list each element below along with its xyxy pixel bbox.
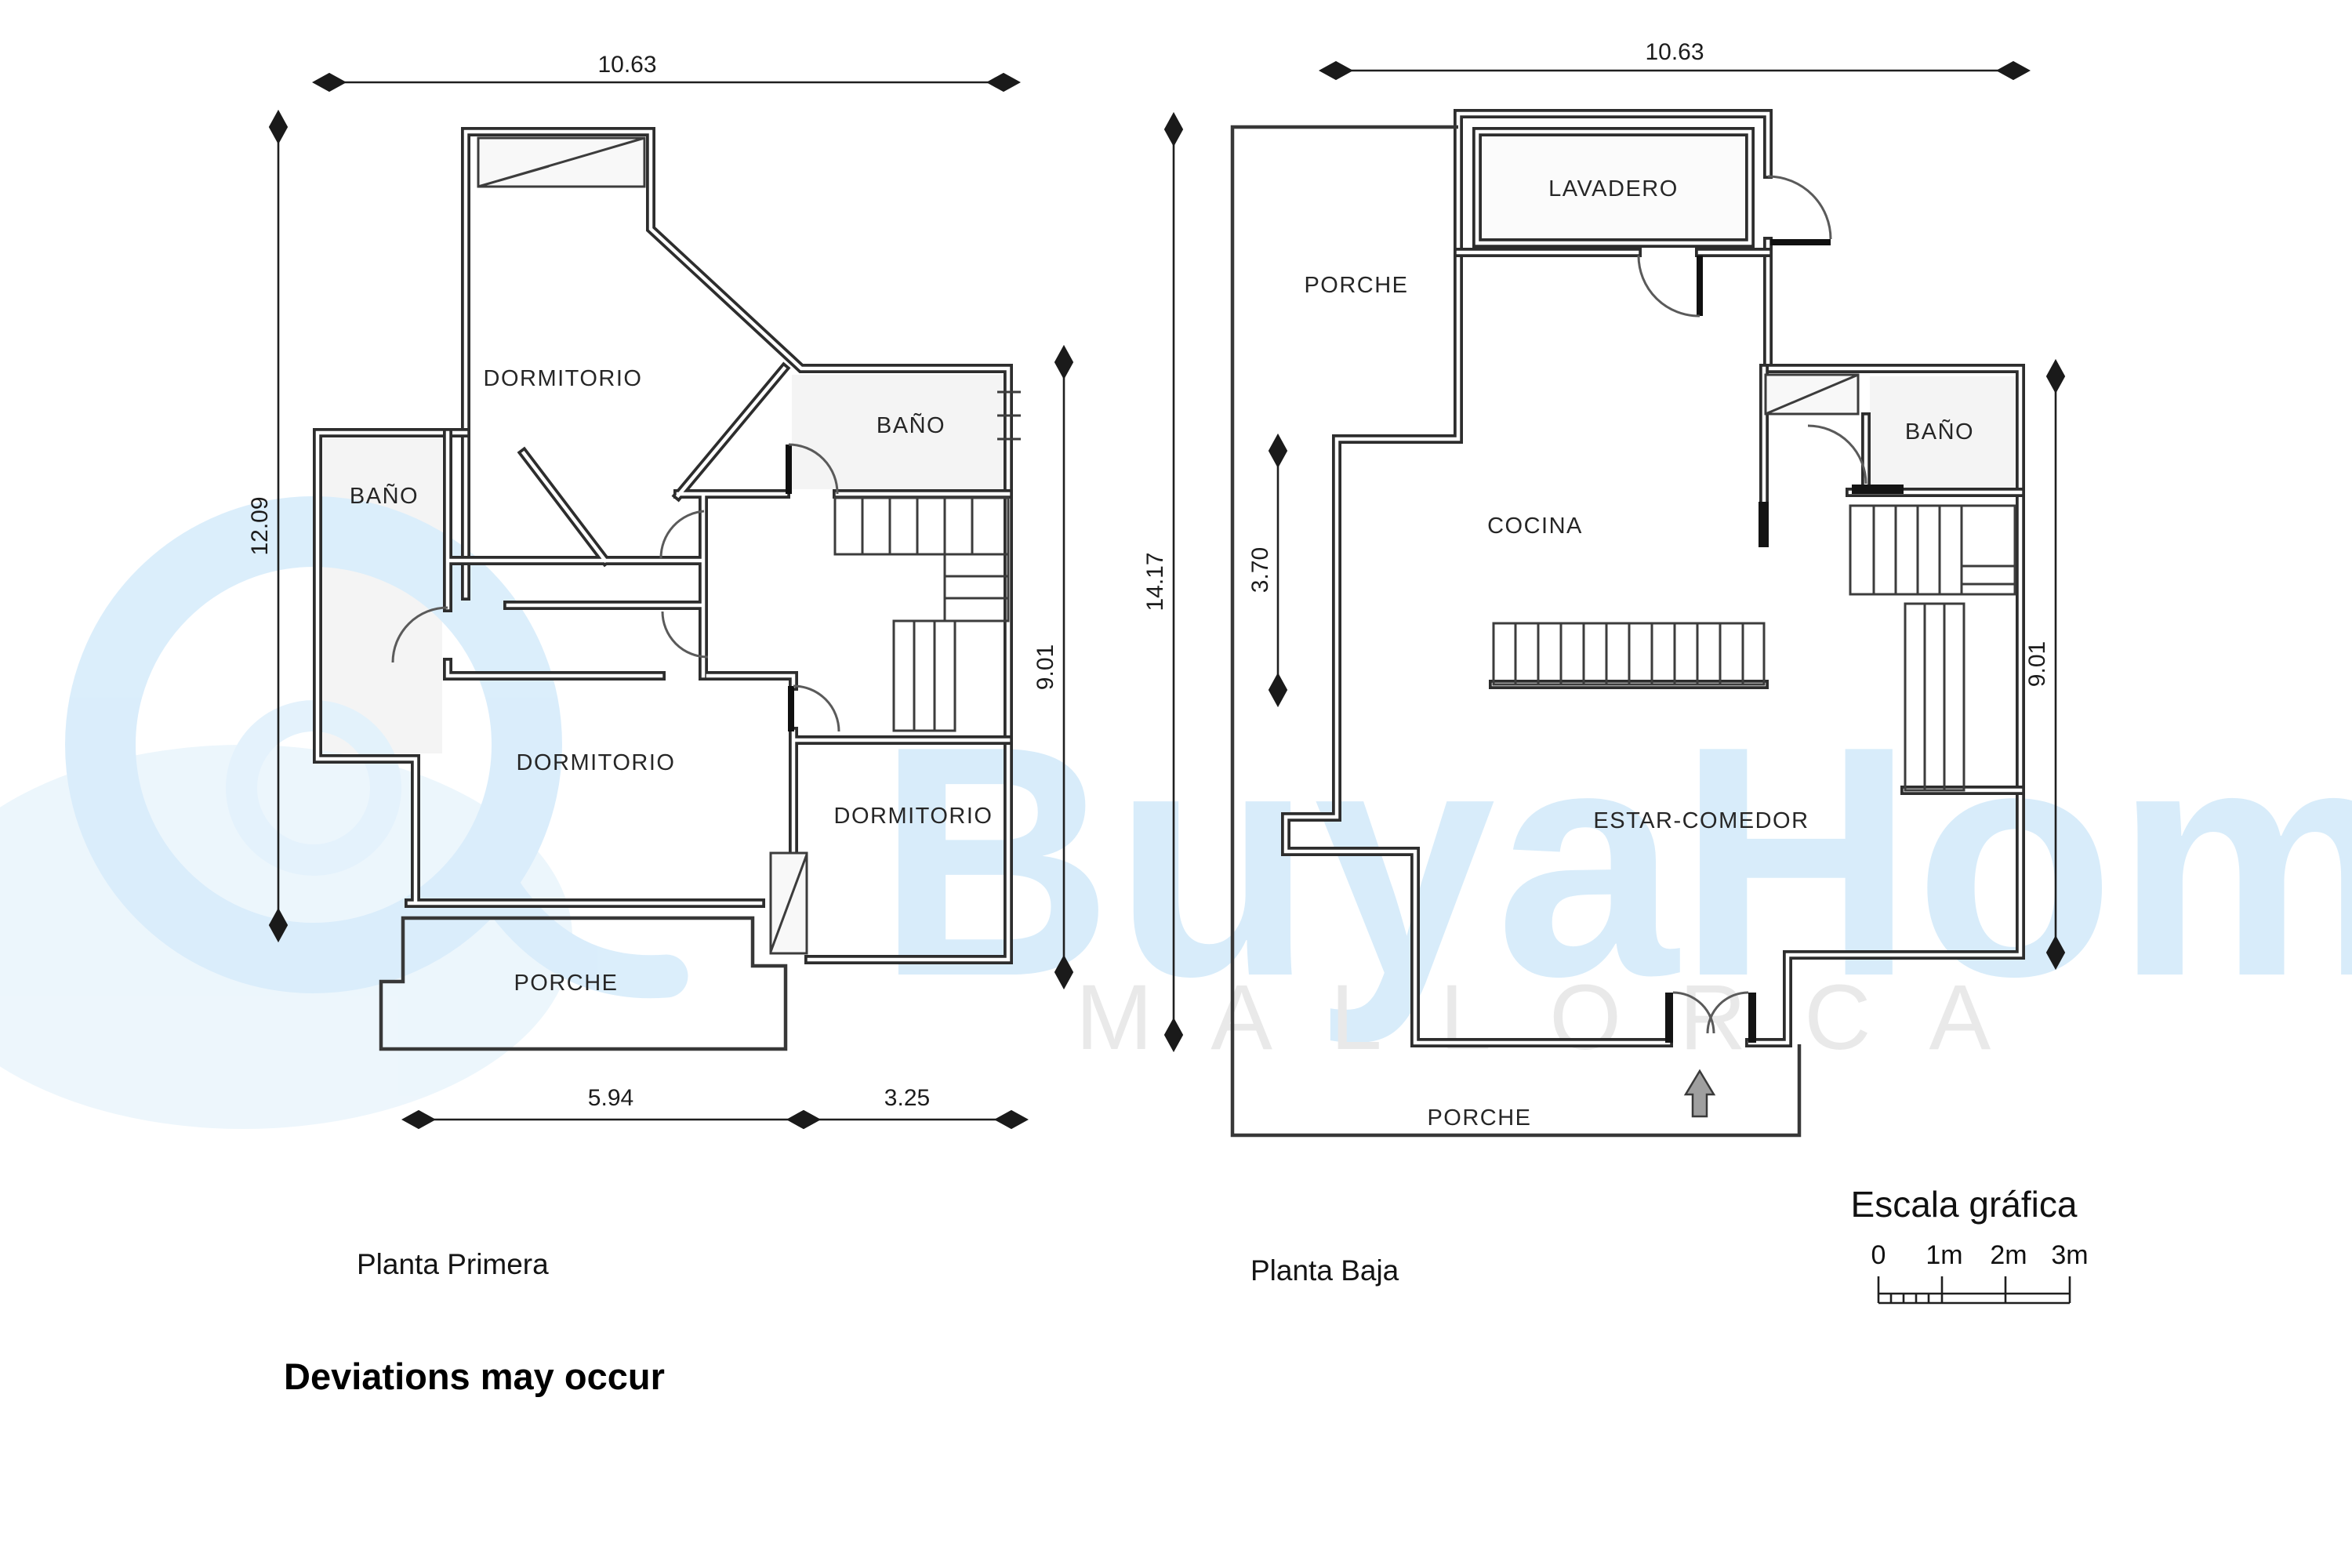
room-label-estar-comedor: ESTAR-COMEDOR [1593, 808, 1809, 833]
entrance-arrow-icon [1686, 1071, 1714, 1116]
room-label-porche-top: PORCHE [1304, 273, 1408, 298]
floorplan-drawing: BuyaHome MALLORCA [0, 0, 2352, 1568]
window-sill [1852, 485, 1904, 494]
plan-title-ground-floor: Planta Baja [1250, 1254, 1399, 1287]
scale-title: Escala gráfica [1851, 1184, 2078, 1225]
stair-treads [1874, 506, 1962, 594]
room-label-dormitorio-br: DORMITORIO [834, 804, 993, 829]
dim-bottom-right: 3.25 [884, 1085, 930, 1111]
room-label-cocina: COCINA [1487, 514, 1583, 539]
room-label-bano-right: BAÑO [877, 412, 946, 438]
room-label-dormitorio-top: DORMITORIO [484, 366, 643, 391]
dim-kitchen-wall: 3.70 [1247, 547, 1273, 593]
entrance-door-leaf [1748, 993, 1756, 1043]
door-jamb [1759, 502, 1769, 547]
watermark-location-text: MALLORCA [1076, 966, 2049, 1069]
door-arc [1639, 256, 1700, 316]
dim-width-top: 10.63 [597, 52, 656, 78]
room-label-porche: PORCHE [514, 971, 618, 996]
scale-tick-2m: 2m [1990, 1240, 2027, 1270]
dim-height-left: 14.17 [1142, 552, 1168, 611]
dim-height-right: 9.01 [1033, 644, 1058, 690]
stair-landing-treads [945, 576, 1008, 598]
floorplan-page: BuyaHome MALLORCA [0, 0, 2352, 1568]
door-arc-exterior [1768, 176, 1831, 239]
dim-height-right: 9.01 [2024, 641, 2050, 687]
room-label-bano: BAÑO [1905, 418, 1974, 445]
room-label-porche-bottom: PORCHE [1427, 1105, 1531, 1131]
plan-title-first-floor: Planta Primera [357, 1248, 549, 1280]
door-arc [1808, 426, 1866, 484]
graphic-scale: Escala gráfica 0 1m 2m 3m [1851, 1184, 2089, 1303]
stair-treads [862, 498, 972, 554]
dim-height-left: 12.09 [247, 496, 273, 555]
room-label-lavadero: LAVADERO [1548, 176, 1679, 201]
door-arc [661, 511, 704, 558]
kitchen-counter [1494, 623, 1764, 684]
scale-tick-3m: 3m [2051, 1240, 2088, 1270]
room-label-bano-left: BAÑO [350, 482, 419, 509]
scale-tick-0: 0 [1871, 1240, 1886, 1270]
scale-bar-graphic [1878, 1276, 2070, 1303]
stair-flight [835, 498, 1008, 554]
counter-divisions [1515, 623, 1743, 684]
scale-tick-1m: 1m [1926, 1240, 1962, 1270]
entrance-door-leaf [1665, 993, 1673, 1043]
door-arc [793, 686, 839, 731]
room-label-dormitorio-bl: DORMITORIO [517, 750, 676, 775]
stair-landing-treads [1962, 566, 2015, 584]
dim-bottom-left: 5.94 [588, 1085, 633, 1111]
dim-width-top: 10.63 [1645, 39, 1704, 65]
deviations-note: Deviations may occur [284, 1356, 665, 1397]
stair-landing [945, 554, 1008, 621]
